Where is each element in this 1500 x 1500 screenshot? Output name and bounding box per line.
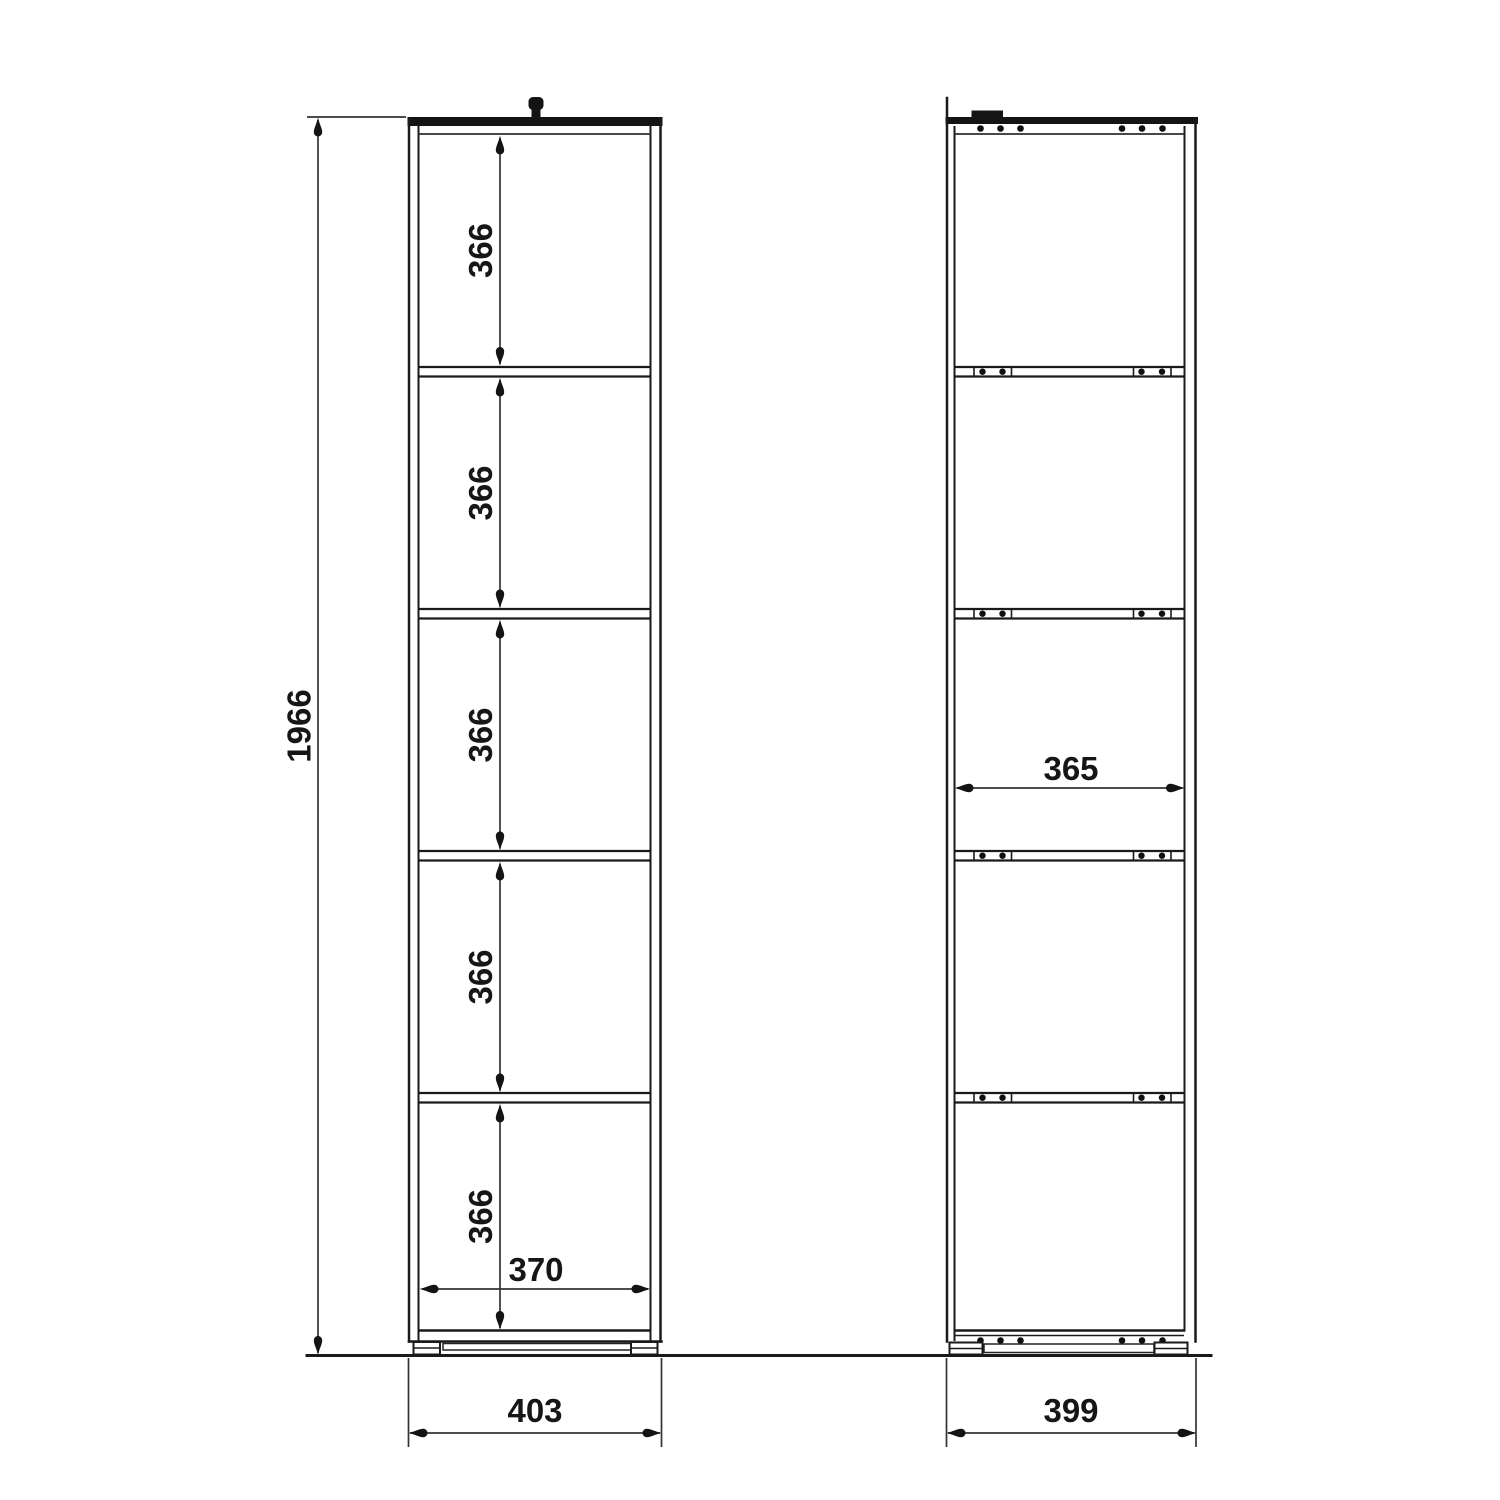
connector-dot xyxy=(979,369,985,375)
connector-dot xyxy=(1159,369,1165,375)
dimension-overall-depth: 399 xyxy=(947,1358,1197,1447)
arrow-up xyxy=(496,862,504,881)
dowel-dot xyxy=(1159,125,1166,132)
arrow-up xyxy=(496,620,504,639)
compartment-label: 366 xyxy=(462,465,499,520)
bottom-dowel-holes xyxy=(977,1337,1166,1344)
wall-fitting-knob-neck xyxy=(532,108,541,118)
connector-dot xyxy=(1138,369,1144,375)
connector-dot xyxy=(979,1095,985,1101)
interior-depth-label: 365 xyxy=(1043,750,1098,787)
arrow-up xyxy=(496,136,504,155)
top-panel-side xyxy=(946,117,1199,124)
connector-dot xyxy=(979,853,985,859)
arrow-left xyxy=(420,1285,439,1293)
arrow-left xyxy=(409,1429,428,1437)
connector-dot xyxy=(1159,853,1165,859)
arrow-up xyxy=(314,118,322,137)
side-view xyxy=(946,98,1199,1355)
arrow-down xyxy=(314,1336,322,1355)
plinth-recess-side xyxy=(984,1344,1154,1353)
arrow-left xyxy=(955,784,974,792)
dimension-overall-height: 1966 xyxy=(281,117,407,1355)
front-view xyxy=(408,97,663,1355)
technical-drawing-canvas: 1966 366 366 366 366 366 xyxy=(0,0,1500,1500)
arrow-down xyxy=(496,347,504,366)
plinth-recess xyxy=(443,1344,631,1351)
dowel-dot xyxy=(997,125,1004,132)
arrow-up xyxy=(496,1104,504,1123)
connector-dot xyxy=(999,853,1005,859)
arrow-down xyxy=(496,590,504,609)
top-dowel-holes xyxy=(977,125,1166,132)
wall-fitting-side xyxy=(972,111,1004,118)
dowel-dot xyxy=(1139,125,1146,132)
arrow-down xyxy=(496,1311,504,1330)
arrow-up xyxy=(496,378,504,397)
dowel-dot xyxy=(1119,1337,1126,1344)
arrow-left xyxy=(947,1429,966,1437)
interior-width-label: 370 xyxy=(508,1251,563,1288)
connector-dot xyxy=(1159,611,1165,617)
cabinet-dimension-diagram: 1966 366 366 366 366 366 xyxy=(0,0,1500,1500)
dimension-overall-width: 403 xyxy=(409,1358,662,1447)
connector-dot xyxy=(1138,1095,1144,1101)
dowel-dot xyxy=(977,125,984,132)
compartment-label: 366 xyxy=(462,223,499,278)
dowel-dot xyxy=(1119,125,1126,132)
connector-dot xyxy=(999,611,1005,617)
arrow-right xyxy=(1178,1429,1197,1437)
shelves-side xyxy=(955,367,1184,1103)
arrow-right xyxy=(1166,784,1185,792)
compartment-label: 366 xyxy=(462,1189,499,1244)
dowel-dot xyxy=(1139,1337,1146,1344)
dimension-compartments: 366 366 366 366 366 xyxy=(462,136,504,1331)
connector-dot xyxy=(999,369,1005,375)
compartment-label: 366 xyxy=(462,949,499,1004)
connector-dot xyxy=(999,1095,1005,1101)
dowel-dot xyxy=(997,1337,1004,1344)
connector-dot xyxy=(1138,611,1144,617)
connector-dot xyxy=(1138,853,1144,859)
overall-depth-label: 399 xyxy=(1043,1392,1098,1429)
dowel-dot xyxy=(1017,1337,1024,1344)
top-panel xyxy=(408,117,663,126)
overall-width-label: 403 xyxy=(507,1392,562,1429)
arrow-down xyxy=(496,832,504,851)
dimension-interior-width: 370 xyxy=(420,1251,651,1293)
connector-dot xyxy=(979,611,985,617)
shelves-front xyxy=(420,367,651,1103)
compartment-label: 366 xyxy=(462,707,499,762)
connector-dot xyxy=(1159,1095,1165,1101)
dimension-interior-depth: 365 xyxy=(955,750,1186,792)
arrow-right xyxy=(632,1285,651,1293)
overall-height-label: 1966 xyxy=(281,689,318,762)
arrow-down xyxy=(496,1074,504,1093)
arrow-right xyxy=(643,1429,662,1437)
dowel-dot xyxy=(1017,125,1024,132)
